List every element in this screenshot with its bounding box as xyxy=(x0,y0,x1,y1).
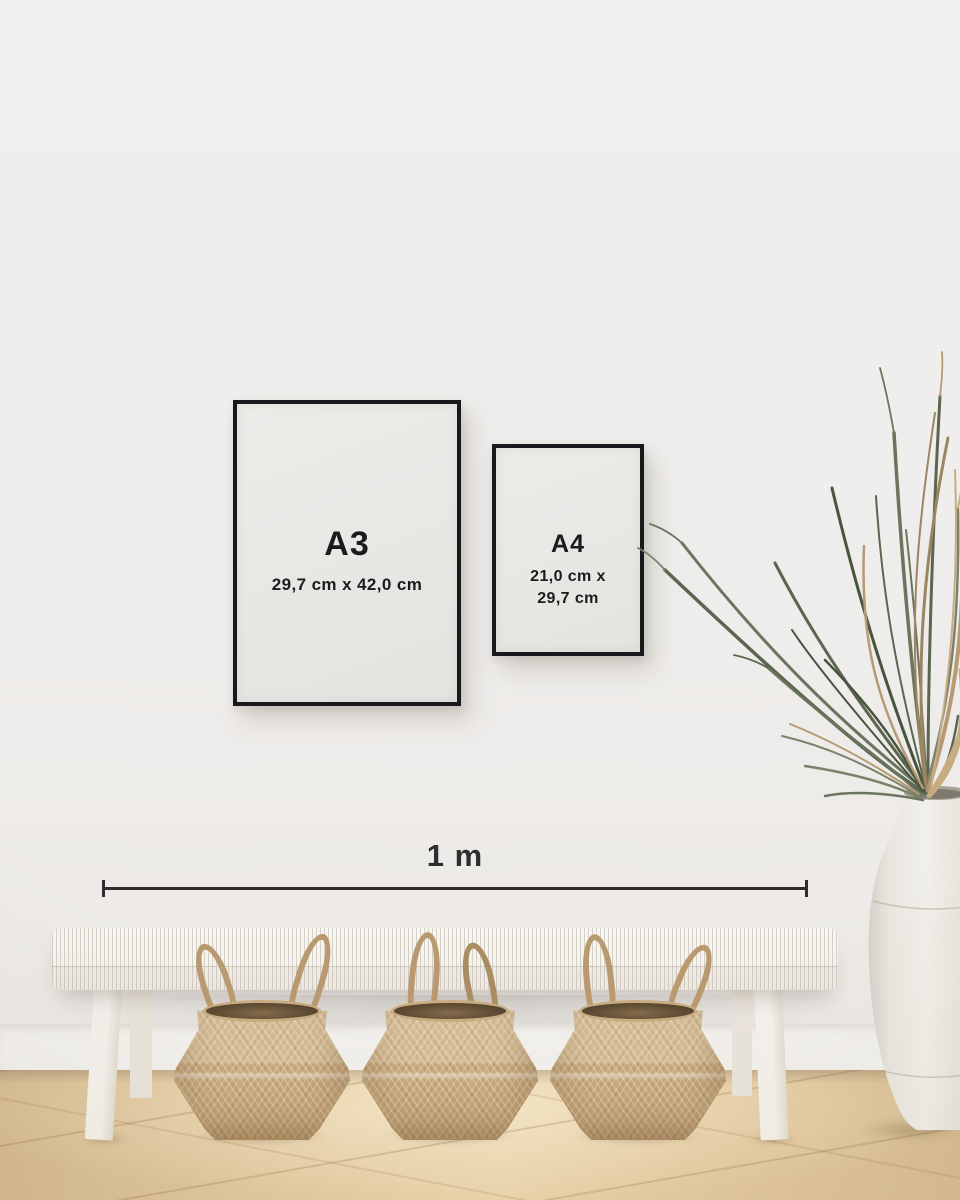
scale-ruler-right-cap xyxy=(805,880,808,897)
seagrass-basket xyxy=(172,998,352,1140)
a3-frame: A3 29,7 cm x 42,0 cm xyxy=(233,400,461,706)
palm-fronds-green xyxy=(638,368,958,800)
a3-size-dimensions: 29,7 cm x 42,0 cm xyxy=(272,574,422,596)
seagrass-basket xyxy=(360,998,540,1140)
basket-interior xyxy=(203,1000,322,1022)
a3-size-label: A3 xyxy=(324,524,369,564)
a4-size-dimensions-line2: 29,7 cm xyxy=(537,588,599,610)
a4-size-dimensions-line1: 21,0 cm x xyxy=(530,566,606,588)
seagrass-basket xyxy=(548,998,728,1140)
basket-interior xyxy=(391,1000,510,1022)
ceramic-vase xyxy=(853,783,960,1143)
palm-plant xyxy=(620,338,960,828)
scale-ruler-left-cap xyxy=(102,880,105,897)
scale-ruler-line xyxy=(102,887,808,890)
a4-size-label: A4 xyxy=(551,530,585,558)
room-scene: A3 29,7 cm x 42,0 cm A4 21,0 cm x 29,7 c… xyxy=(0,0,960,1200)
a3-paper: A3 29,7 cm x 42,0 cm xyxy=(237,404,457,702)
a4-paper: A4 21,0 cm x 29,7 cm xyxy=(496,448,640,652)
bench-leg-left-back xyxy=(130,988,152,1098)
vase-body xyxy=(869,795,960,1130)
bench-seat xyxy=(52,928,838,990)
scale-ruler-label: 1 m xyxy=(102,838,808,874)
bench-leg-right-back xyxy=(732,988,752,1096)
scale-ruler: 1 m xyxy=(102,838,808,898)
basket-interior xyxy=(579,1000,698,1022)
palm-fronds-dried xyxy=(790,352,960,796)
